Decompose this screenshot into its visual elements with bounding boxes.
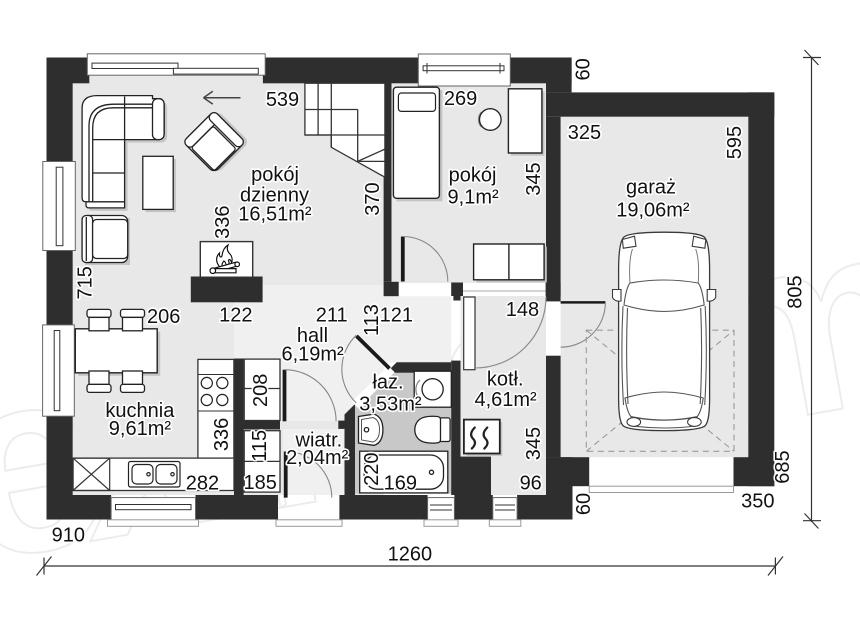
svg-text:185: 185 bbox=[244, 472, 277, 494]
svg-text:325: 325 bbox=[568, 122, 601, 144]
svg-text:4,61m²: 4,61m² bbox=[474, 389, 537, 411]
svg-text:16,51m²: 16,51m² bbox=[238, 203, 312, 225]
svg-text:685: 685 bbox=[772, 450, 794, 483]
svg-text:122: 122 bbox=[219, 305, 252, 327]
svg-text:208: 208 bbox=[250, 374, 272, 407]
svg-text:2,04m²: 2,04m² bbox=[286, 447, 349, 469]
svg-text:220: 220 bbox=[361, 453, 383, 486]
svg-text:350: 350 bbox=[741, 491, 774, 513]
svg-text:96: 96 bbox=[520, 473, 542, 495]
svg-text:6,19m²: 6,19m² bbox=[281, 344, 344, 366]
svg-text:19,06m²: 19,06m² bbox=[616, 200, 690, 222]
svg-text:169: 169 bbox=[384, 473, 417, 495]
svg-text:121: 121 bbox=[380, 305, 413, 327]
svg-text:9,1m²: 9,1m² bbox=[448, 187, 499, 209]
svg-text:336: 336 bbox=[212, 206, 234, 239]
svg-text:148: 148 bbox=[506, 299, 539, 321]
svg-text:garaż: garaż bbox=[626, 176, 676, 198]
svg-text:345: 345 bbox=[523, 427, 545, 460]
svg-text:336: 336 bbox=[211, 418, 233, 451]
svg-text:115: 115 bbox=[249, 430, 271, 462]
svg-text:910: 910 bbox=[52, 525, 85, 547]
svg-text:206: 206 bbox=[147, 306, 180, 328]
svg-text:pokój: pokój bbox=[449, 165, 497, 187]
svg-text:60: 60 bbox=[573, 493, 595, 515]
svg-text:pokój: pokój bbox=[251, 164, 299, 186]
svg-text:269: 269 bbox=[444, 88, 477, 110]
svg-text:539: 539 bbox=[266, 89, 299, 111]
svg-text:805: 805 bbox=[785, 275, 807, 308]
svg-text:370: 370 bbox=[362, 182, 384, 215]
svg-text:1260: 1260 bbox=[388, 544, 433, 566]
svg-text:kotł.: kotł. bbox=[487, 368, 524, 390]
svg-text:345: 345 bbox=[523, 162, 545, 195]
svg-text:715: 715 bbox=[75, 266, 97, 299]
svg-text:3,53m²: 3,53m² bbox=[359, 393, 422, 415]
svg-text:282: 282 bbox=[186, 473, 219, 495]
svg-text:211: 211 bbox=[316, 305, 348, 327]
svg-text:9,61m²: 9,61m² bbox=[109, 418, 172, 440]
svg-text:60: 60 bbox=[573, 58, 595, 80]
svg-text:595: 595 bbox=[724, 126, 746, 159]
svg-text:łaz.: łaz. bbox=[372, 372, 403, 394]
